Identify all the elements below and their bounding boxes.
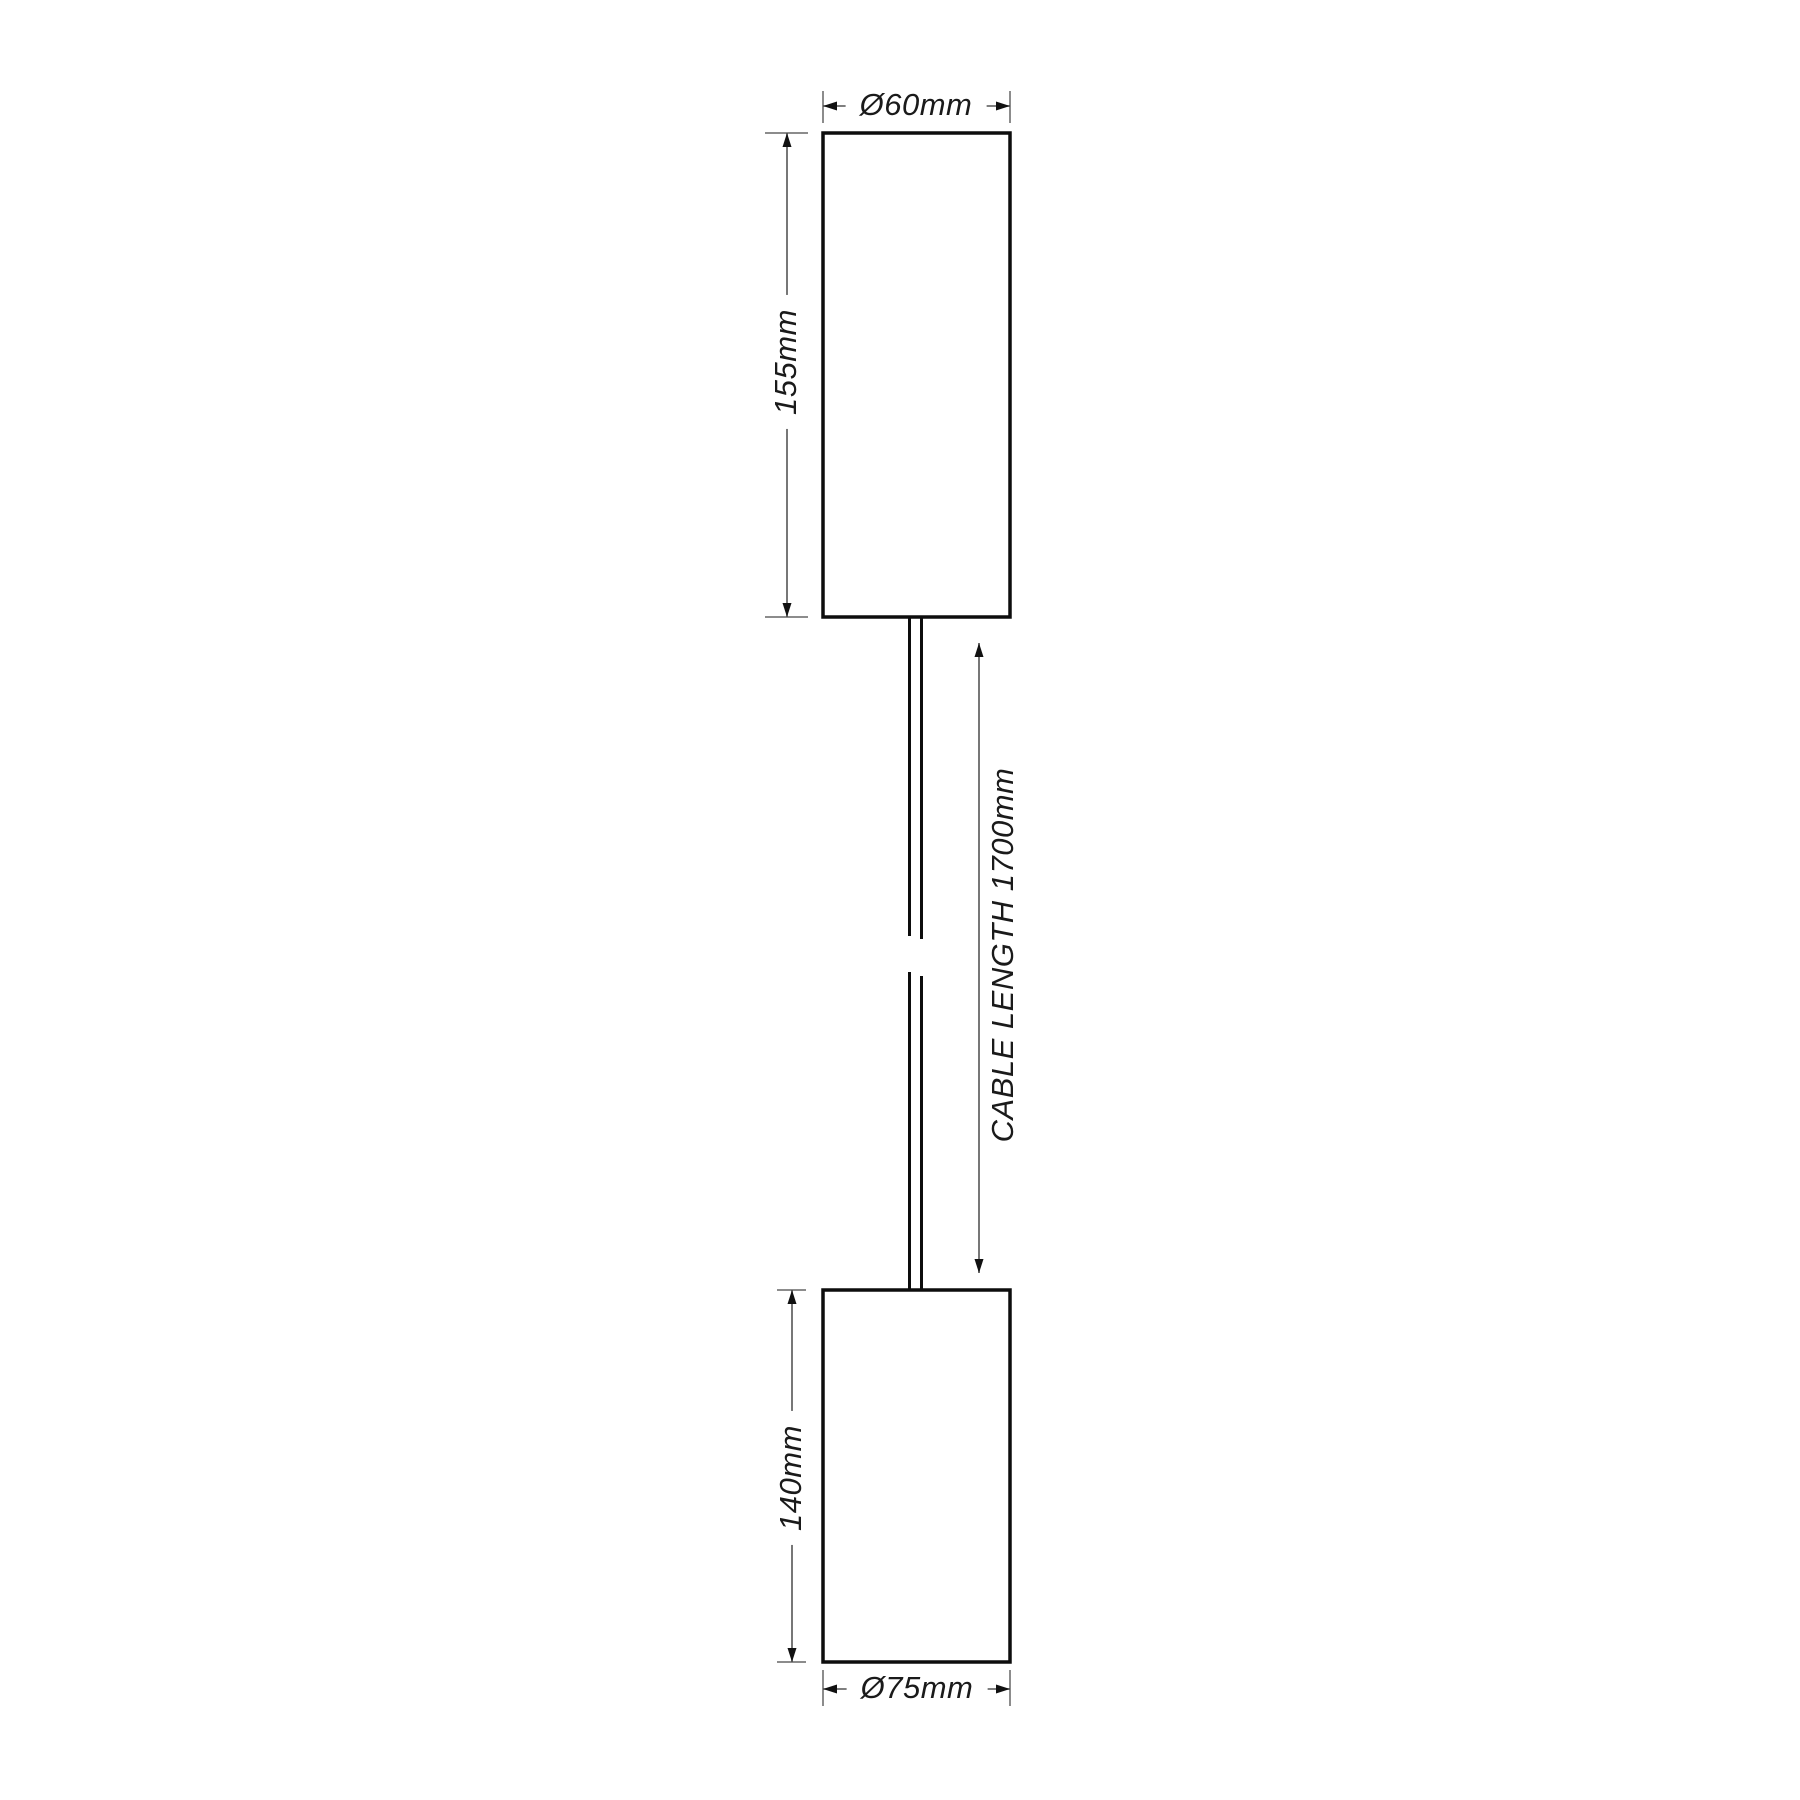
arrowhead-down-icon [975,1259,984,1273]
cable-length-label: CABLE LENGTH 1700mm [984,764,1022,1147]
cable-lines [910,617,922,1290]
top-diameter-label: Ø60mm [846,86,987,124]
pendant-light-diagram [0,0,1800,1800]
canopy-height-label: 155mm [767,295,805,429]
arrowhead-left-icon [823,1685,837,1694]
arrowhead-up-icon [783,133,792,147]
technical-drawing-canvas: Ø60mm 155mm CABLE LENGTH 1700mm 140mm Ø7… [0,0,1800,1800]
fixture-body-outline [823,1290,1010,1662]
arrowhead-up-icon [788,1290,797,1304]
arrowhead-down-icon [788,1648,797,1662]
arrowhead-right-icon [996,102,1010,111]
fixture-height-label: 140mm [772,1411,810,1545]
canopy-outline [823,133,1010,617]
arrowhead-down-icon [783,603,792,617]
dimension-cable-length [975,643,984,1273]
bottom-diameter-label: Ø75mm [847,1669,988,1707]
arrowhead-right-icon [996,1685,1010,1694]
arrowhead-up-icon [975,643,984,657]
arrowhead-left-icon [823,102,837,111]
